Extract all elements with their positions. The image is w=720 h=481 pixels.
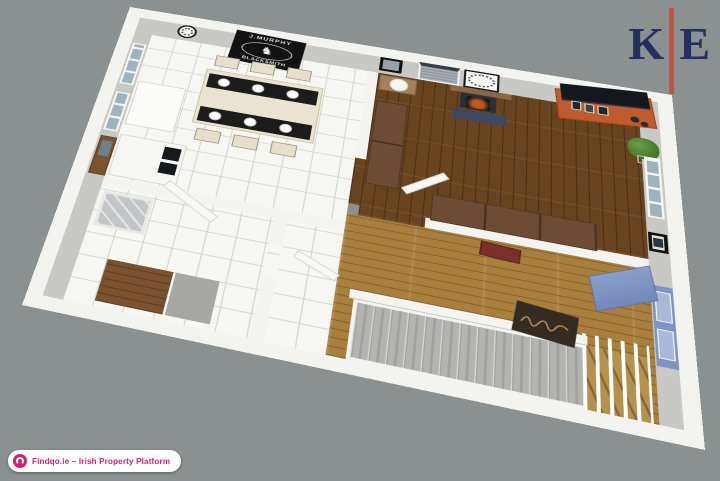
plate bbox=[286, 89, 300, 99]
dining-clock-ticks bbox=[180, 27, 194, 36]
plate bbox=[243, 117, 257, 128]
floorplan-3d: J.MURPHY ♞ BLACKSMITH bbox=[22, 7, 705, 450]
plate bbox=[217, 78, 231, 88]
plate bbox=[278, 123, 292, 134]
screenshot-root: J.MURPHY ♞ BLACKSMITH bbox=[0, 0, 720, 481]
photo-frame bbox=[597, 106, 608, 116]
plate bbox=[251, 83, 265, 93]
entrance-door-glass-bottom bbox=[657, 328, 676, 361]
ke-logo: K E bbox=[629, 8, 710, 94]
photo-frame bbox=[584, 103, 594, 113]
hall-picture-photo bbox=[653, 238, 663, 248]
bathroom-gray-mat bbox=[165, 273, 220, 325]
photo-frame bbox=[571, 101, 581, 111]
logo-letter-e: E bbox=[679, 21, 710, 67]
findqo-badge[interactable]: Findqo.ie – Irish Property Platform bbox=[8, 450, 181, 472]
logo-divider-bar bbox=[669, 8, 674, 94]
horse-icon: ♞ bbox=[259, 45, 275, 57]
plate bbox=[208, 111, 223, 122]
living-clock-ticks bbox=[468, 73, 496, 90]
logo-letter-k: K bbox=[629, 21, 665, 67]
findqo-logo-icon bbox=[13, 454, 27, 468]
findqo-badge-label: Findqo.ie – Irish Property Platform bbox=[32, 457, 170, 466]
